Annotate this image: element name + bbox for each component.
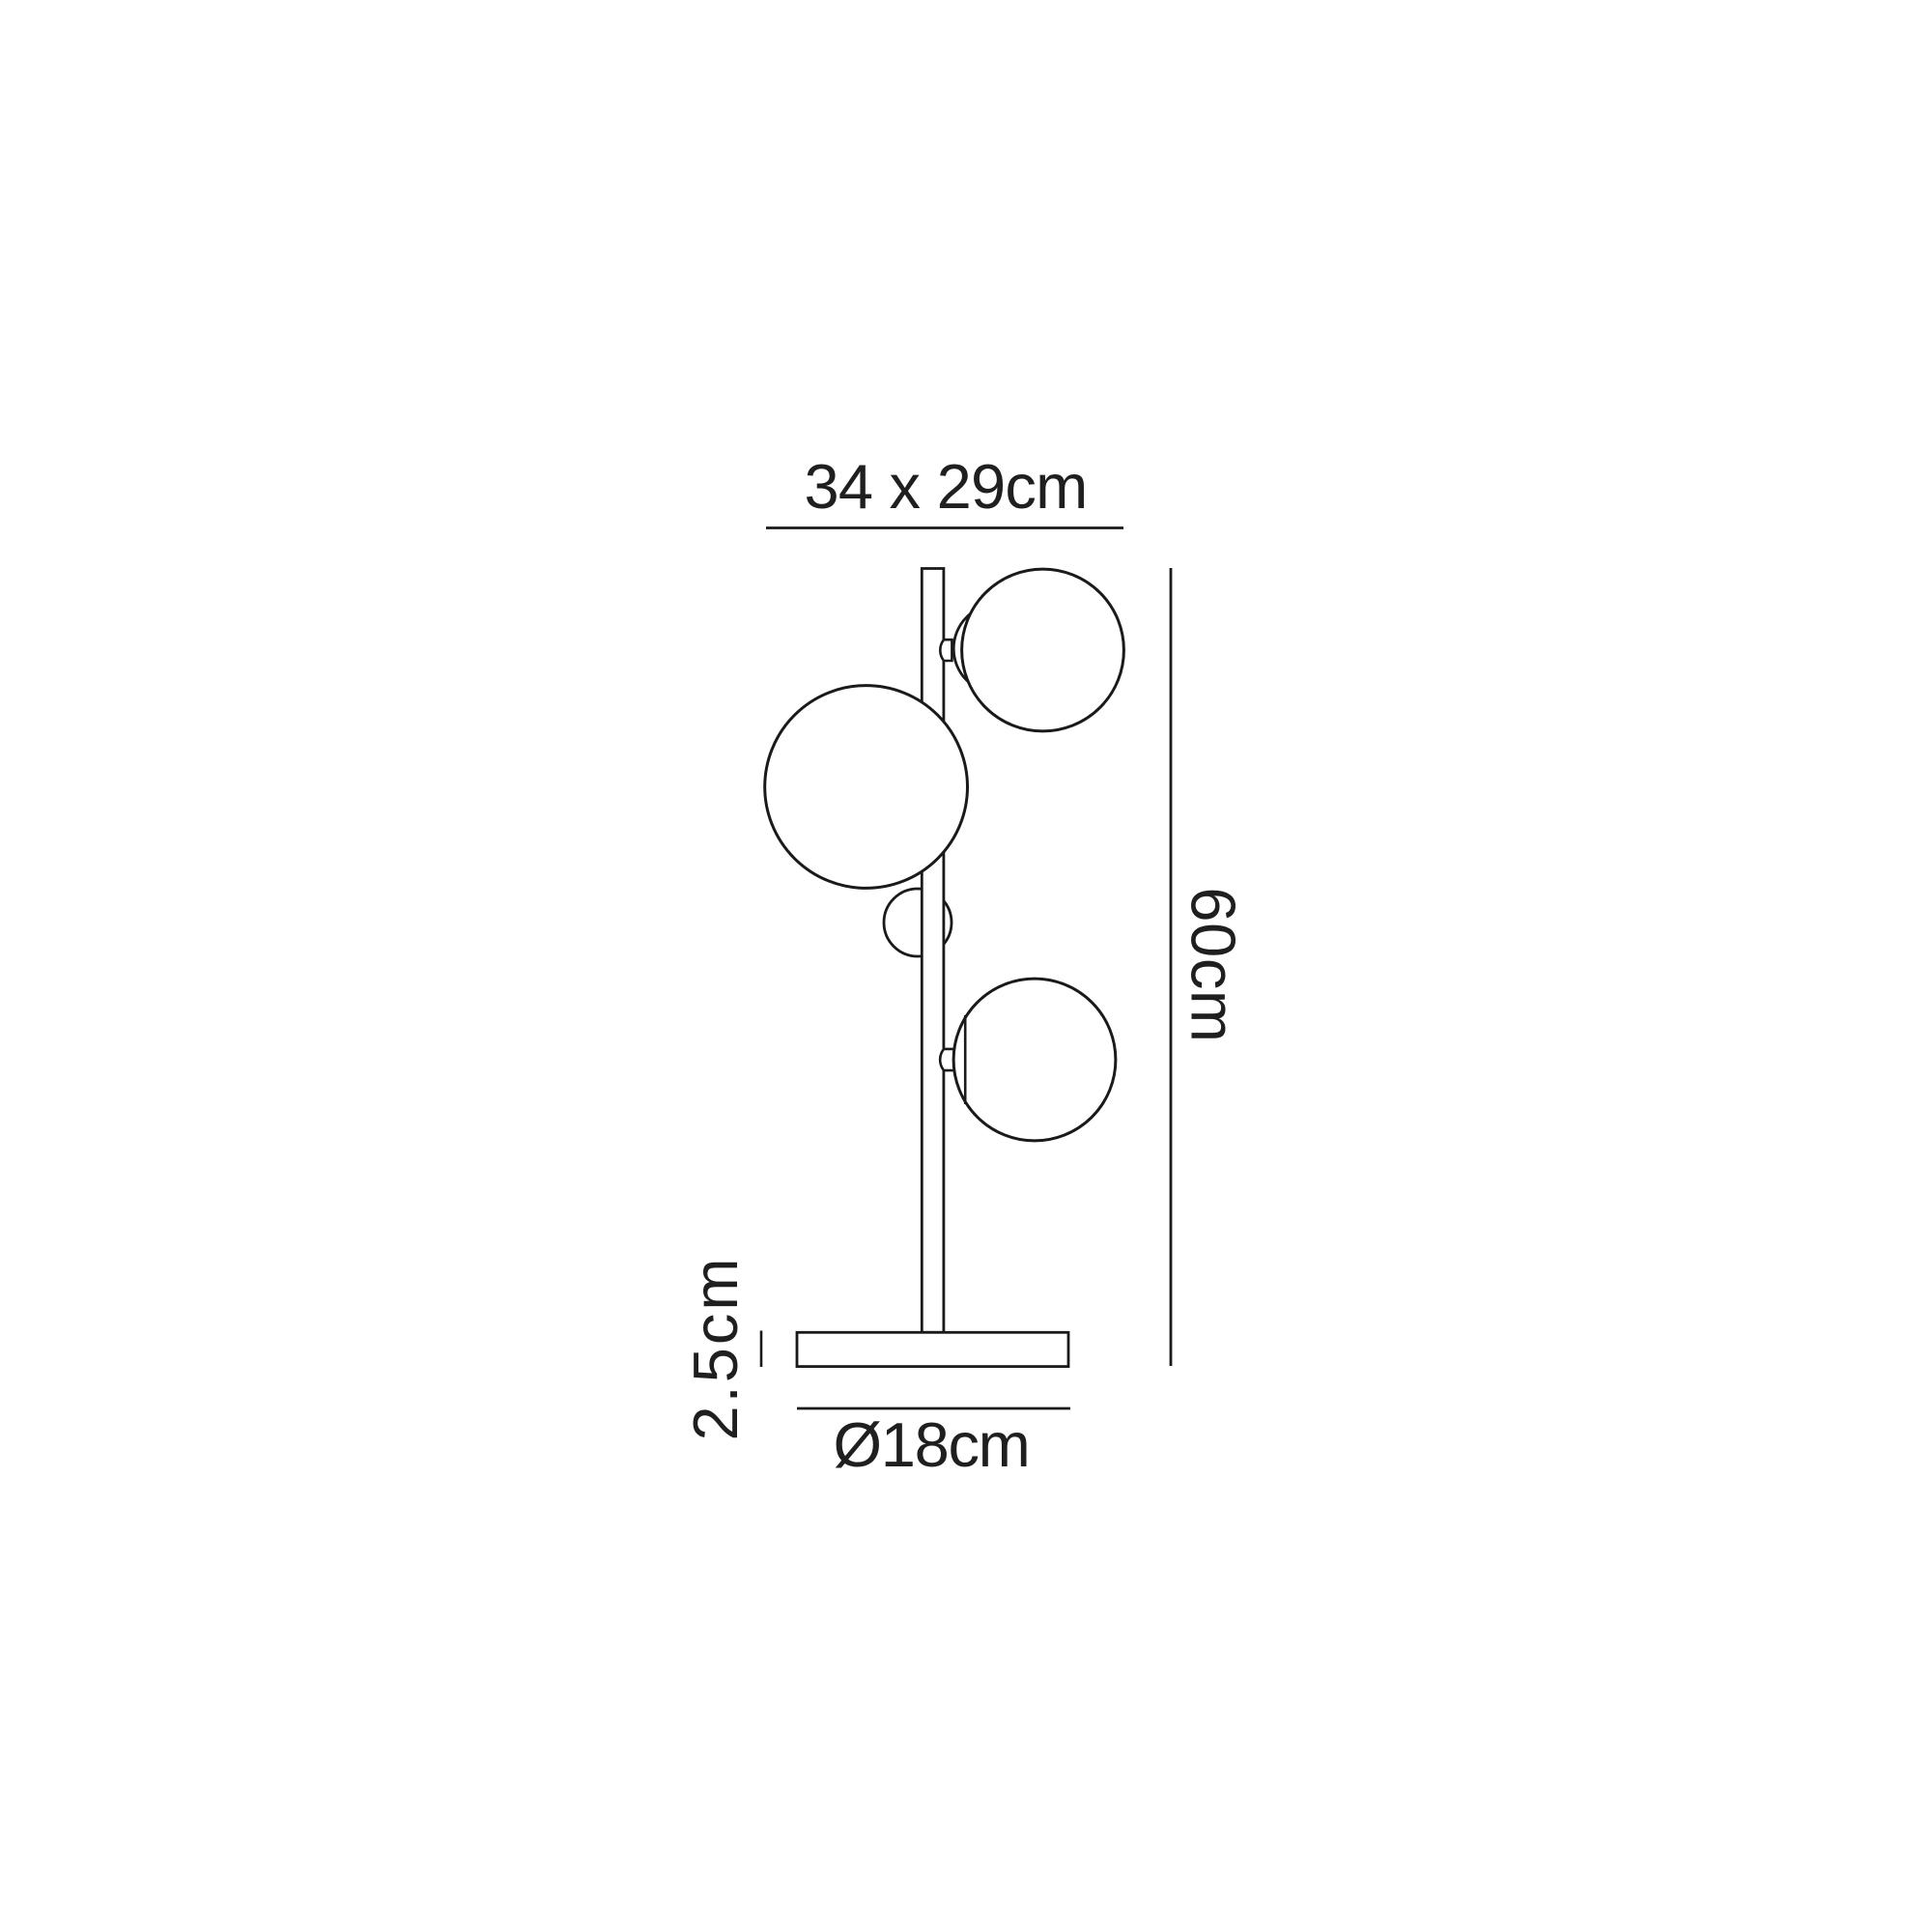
svg-text:Ø18cm: Ø18cm — [833, 1409, 1029, 1480]
svg-text:2.5cm: 2.5cm — [680, 1255, 751, 1440]
svg-text:34 x 29cm: 34 x 29cm — [804, 451, 1087, 522]
svg-text:60cm: 60cm — [1179, 887, 1249, 1042]
